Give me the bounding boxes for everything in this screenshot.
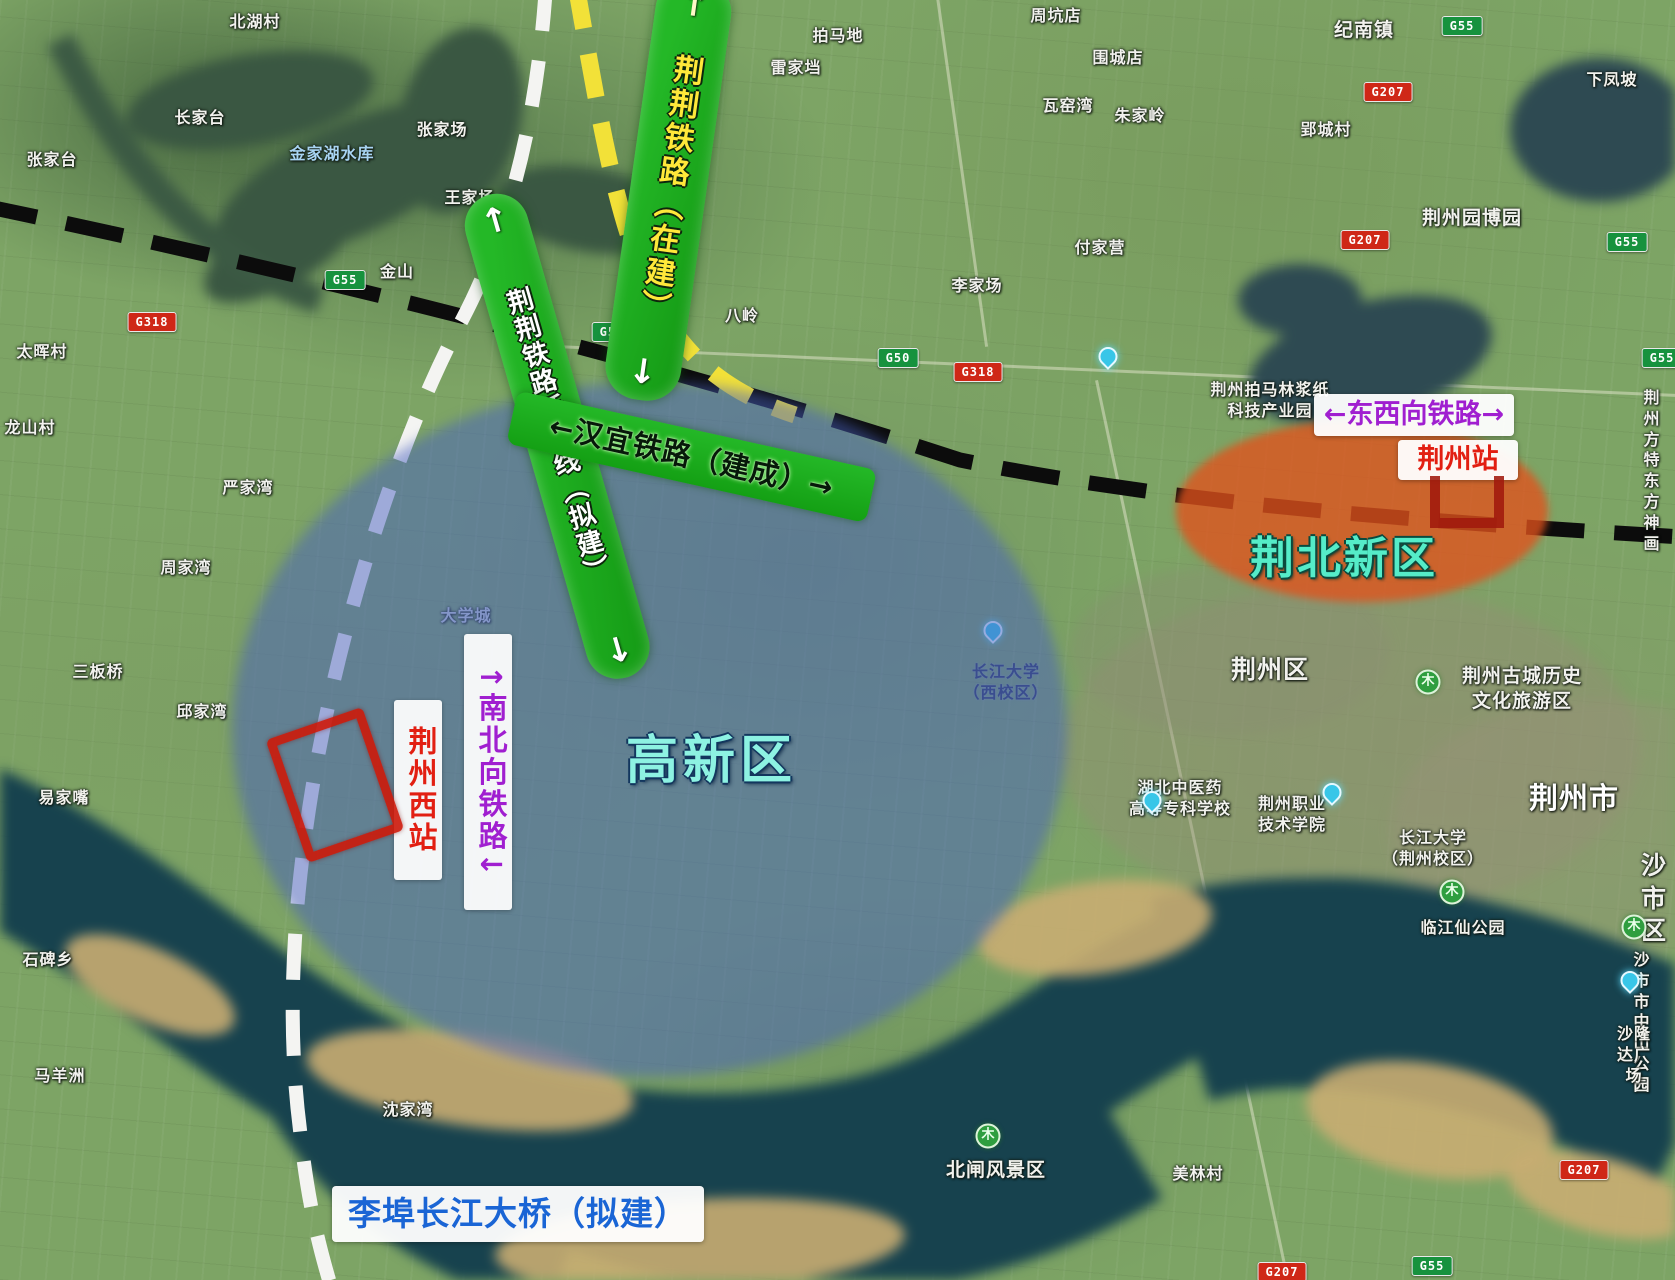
map-label: 龙山村 [4,418,55,439]
map-label: 荆州区 [1231,654,1309,687]
map-label: 长家台 [174,108,225,129]
libu-bridge-label: 李埠长江大桥（拟建） [332,1186,704,1242]
map-label: 下凤坡 [1586,70,1637,91]
map-label: 张家台 [26,150,77,171]
road-shield-g318: G318 [128,312,177,332]
map-label: 荆州市 [1529,780,1619,818]
map-label: 郢城村 [1300,120,1351,141]
map-label: 八岭 [725,306,759,327]
map-label: 北闸风景区 [946,1158,1046,1183]
arrow-up-icon: ↑ [678,0,710,22]
map-label: 太晖村 [16,342,67,363]
map-label: 雷家垱 [770,58,821,79]
map-label: 张家场 [416,120,467,141]
map-label: 荆州园博园 [1422,206,1522,231]
road-shield-g55: G55 [325,270,366,290]
map-label: 长江大学 （荆州校区） [1382,828,1484,870]
map-label: 周坑店 [1030,6,1081,27]
map-label: 三板桥 [72,662,123,683]
map-label: 邱家湾 [176,702,227,723]
map-label: 易家嘴 [38,788,89,809]
road-shield-g55: G55 [1607,232,1648,252]
map-label: 付家营 [1074,238,1125,259]
map-label: 金山 [380,262,414,283]
satellite-map: 北湖村张家台长家台金家湖水库张家场王家场金山拍马地雷家垱李家场八岭周坑店围城店瓦… [0,0,1675,1280]
road-shield-g50: G50 [878,348,919,368]
road-shield-g318: G318 [954,362,1003,382]
arrow-down-icon: ↓ [626,356,658,390]
arrow-down-icon: ↓ [601,633,637,670]
park-tree-icon: 木 [976,1124,1001,1149]
map-label: 严家湾 [222,478,273,499]
map-label: 纪南镇 [1334,18,1394,43]
map-label: 朱家岭 [1114,106,1165,127]
map-label: 沙隆达广场 [1614,1024,1655,1086]
park-tree-icon: 木 [1440,880,1465,905]
jingzhou-station-label: 荆州站 [1398,440,1518,480]
east-west-railway-label: ←东西向铁路→ [1314,394,1514,436]
map-label: 金家湖水库 [289,144,374,165]
map-label: 荆州职业 技术学院 [1258,794,1326,836]
road-shield-g55: G55 [1442,16,1483,36]
map-label: 石碑乡 [22,950,73,971]
road-shield-g207: G207 [1341,230,1390,250]
jingzhou-station-marker [1430,476,1504,528]
park-tree-icon: 木 [1416,670,1441,695]
map-label: 荆州方特 东方神画 [1641,388,1664,554]
map-label: 荆州拍马林浆纸 科技产业园 [1210,380,1329,422]
map-label: 瓦窑湾 [1042,96,1093,117]
map-label: 沈家湾 [382,1100,433,1121]
map-label: 周家湾 [160,558,211,579]
map-label: 美林村 [1172,1164,1223,1185]
map-label: 拍马地 [812,26,863,47]
map-label: 北湖村 [229,12,280,33]
jingzhou-west-station-label: 荆州西站 [394,700,442,880]
map-label: 围城店 [1092,48,1143,69]
road-shield-g207: G207 [1560,1160,1609,1180]
park-tree-icon: 木 [1622,915,1647,940]
map-label: 李家场 [951,276,1002,297]
map-label: 临江仙公园 [1420,918,1505,939]
road-shield-g55: G55 [1412,1256,1453,1276]
arrow-up-icon: ↑ [478,203,514,240]
road-shield-g55: G55 [1642,348,1675,368]
map-label: 荆州古城历史 文化旅游区 [1462,664,1582,713]
gaoxin-district-name: 高新区 [626,718,797,793]
road-shield-g207: G207 [1364,82,1413,102]
map-label: 马羊洲 [34,1066,85,1087]
road-shield-g207: G207 [1258,1262,1307,1280]
jingbei-new-district-name: 荆北新区 [1250,522,1438,586]
north-south-railway-label: ↑南北向铁路↓ [464,634,512,910]
